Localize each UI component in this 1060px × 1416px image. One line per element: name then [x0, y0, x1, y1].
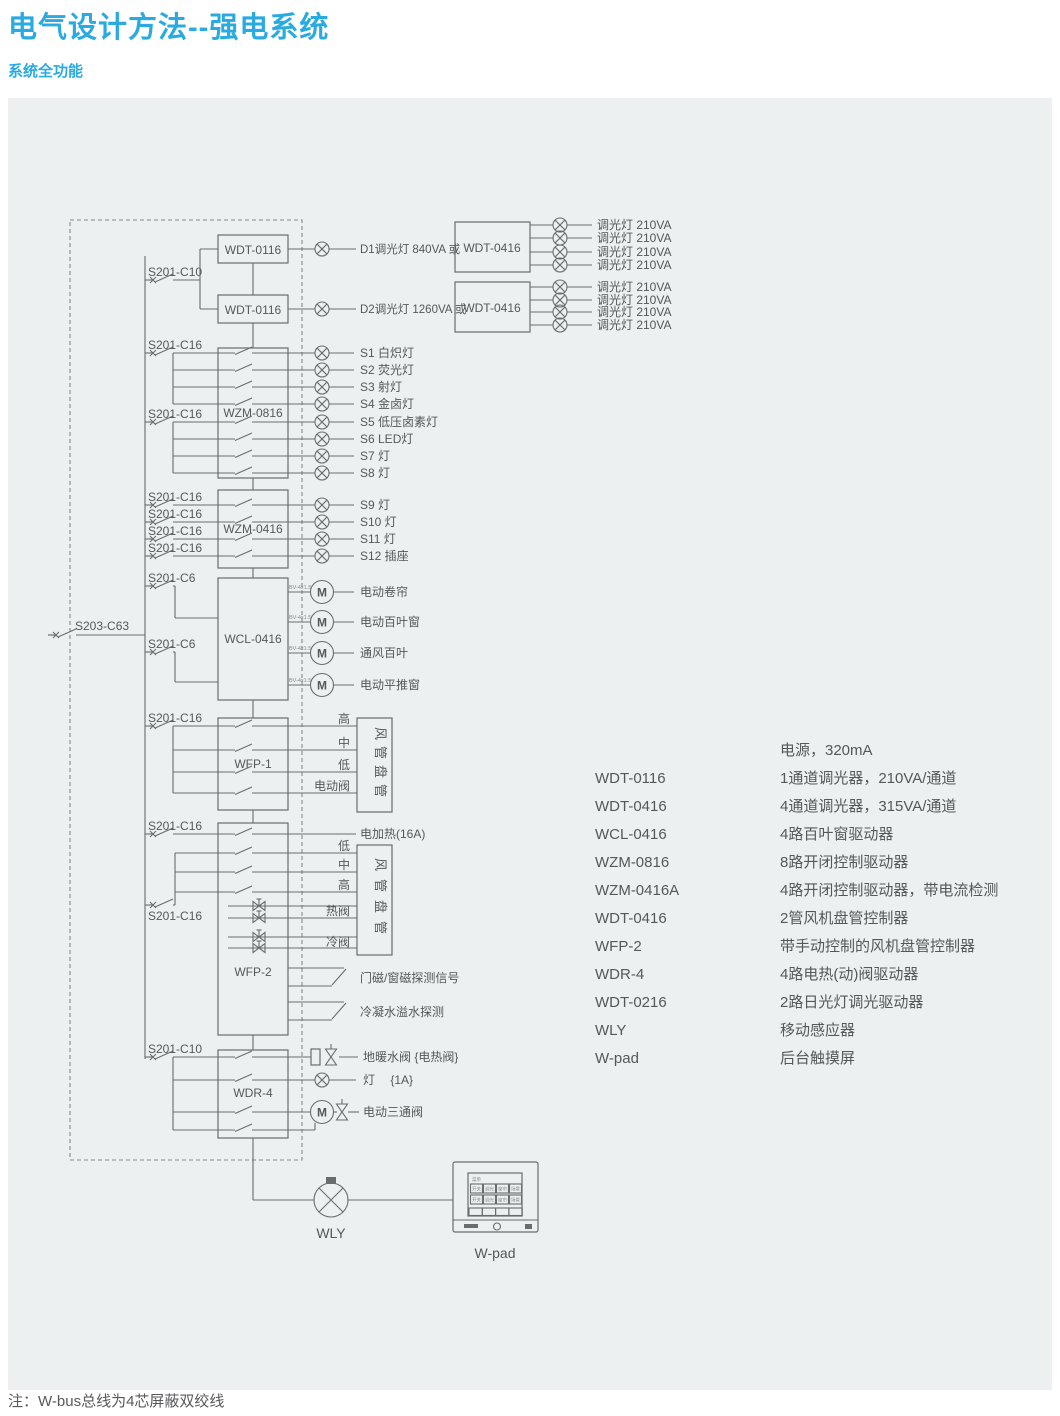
page-subtitle: 系统全功能 [8, 60, 83, 81]
legend: 电源，320mA WDT-01161通道调光器，210VA/通道 WDT-041… [595, 742, 998, 1067]
door-sensor-input: 门磁/窗磁探测信号 [288, 968, 459, 986]
wpad-button: 开关 [472, 1197, 481, 1204]
wire-spec: BV-4x1.5 [289, 585, 311, 591]
legend-desc: 移动感应器 [780, 1021, 855, 1039]
row-label: 电动阀 [314, 779, 350, 793]
output-label: S10 灯 [360, 515, 397, 529]
lighting-section-wzm0416: WZM-0416 S201-C16 S9 灯 S201-C16 S10 灯 S2… [145, 490, 409, 568]
page-title: 电气设计方法--强电系统 [8, 4, 329, 46]
legend-desc: 电源，320mA [780, 742, 873, 759]
breaker-label: S201-C16 [148, 909, 202, 923]
legend-desc: 后台触摸屏 [780, 1050, 855, 1067]
legend-code: WZM-0416A [595, 882, 679, 899]
wpad-mark [525, 1224, 532, 1229]
output-label: 电动平推窗 [360, 678, 420, 692]
module-label: WFP-2 [234, 965, 272, 979]
wpad-buttons-row2: 开关 调光 窗帘 场景 [471, 1195, 522, 1204]
bus-devices: WLY 菜单 开关 调光 窗帘 场景 开关 调光 窗帘 场景 [253, 1162, 538, 1261]
breaker-label: S201-C16 [148, 490, 202, 504]
dimmer-section: S201-C10 WDT-0116 WDT-0116 D1调光灯 840VA 或… [145, 218, 671, 332]
legend-code: WDT-0416 [595, 910, 667, 927]
curtain-section-wcl0416: S201-C6 S201-C6 WCL-0416 BV-4x1.5M电动卷帘 B… [145, 571, 420, 700]
module-box-wfp2 [218, 823, 288, 1035]
channel-label: 调光灯 210VA [597, 305, 671, 319]
legend-desc: 2路日光灯调光驱动器 [780, 994, 923, 1011]
wpad-button: 窗帘 [498, 1197, 507, 1204]
wdt0416-2-outputs: 调光灯 210VA 调光灯 210VA 调光灯 210VA 调光灯 210VA [530, 280, 671, 332]
fan-coil-label: 风管盘管 [373, 727, 388, 803]
wpad-button: 场景 [511, 1197, 520, 1204]
heat-valve-body [311, 1049, 320, 1065]
wly-label: WLY [316, 1225, 346, 1241]
wpad-speaker [464, 1224, 478, 1228]
legend-desc: 1通道调光器，210VA/通道 [780, 770, 956, 787]
wpad-button: 调光 [485, 1186, 494, 1193]
output-label: S8 灯 [360, 466, 390, 480]
wpad-button: 开关 [472, 1186, 481, 1193]
lighting-section-wzm0816: S201-C16 S201-C16 WZM-0816 S1 白炽灯 S2 荧光灯… [145, 338, 438, 480]
legend-code: WDT-0116 [595, 770, 666, 787]
breaker-label: S201-C10 [148, 265, 202, 279]
wpad-home-button [494, 1223, 501, 1230]
module-label: WDT-0416 [463, 241, 521, 255]
legend-desc: 8路开闭控制驱动器 [780, 854, 908, 871]
circuit-diagram: S203-C63 S201-C10 WDT-0116 WDT-0116 D1调光… [8, 98, 1052, 1390]
wpad-button: 场景 [511, 1186, 520, 1193]
output-label-three-way: 电动三通阀 [363, 1105, 423, 1119]
input-label-condensate: 冷凝水溢水探测 [360, 1004, 444, 1019]
row-label: 中 [338, 735, 350, 750]
legend-desc: 带手动控制的风机盘管控制器 [780, 937, 975, 955]
footnote: 注：W-bus总线为4芯屏蔽双绞线 [8, 1390, 224, 1411]
breaker-label: S201-C16 [148, 819, 202, 833]
breaker-label: S201-C16 [148, 524, 202, 538]
channel-label: 调光灯 210VA [597, 245, 671, 259]
wpad-label: W-pad [475, 1245, 516, 1261]
row-label: 高 [338, 711, 350, 726]
motor-icon: M [317, 586, 327, 600]
breaker-label: S201-C16 [148, 507, 202, 521]
breaker-label: S201-C16 [148, 711, 202, 725]
fancoil-section-wfp1: S201-C16 WFP-1 高 中 低 电动阀 风管盘管 [145, 711, 392, 812]
module-label: WDT-0416 [463, 301, 521, 315]
output-label: S5 低压卤素灯 [360, 415, 438, 429]
wire-spec: BV-4x1.5 [289, 678, 311, 684]
module-label: WCL-0416 [224, 632, 282, 646]
motor-icon: M [317, 1106, 327, 1120]
legend-code: WFP-2 [595, 938, 642, 955]
output-label-floor-valve: 地暖水阀 {电热阀} [363, 1050, 458, 1064]
output-label-d2: D2调光灯 1260VA 或 [360, 302, 467, 316]
row-label: 高 [338, 877, 350, 892]
output-label: S9 灯 [360, 498, 390, 512]
main-breaker-label: S203-C63 [75, 619, 129, 633]
row-label-hot-valve: 热阀 [326, 904, 350, 918]
breaker-label: S201-C10 [148, 1042, 202, 1056]
motor-icon: M [317, 647, 327, 661]
module-label: WDT-0116 [225, 303, 282, 317]
power-bus: S203-C63 [48, 256, 145, 1059]
module-label: WZM-0816 [223, 406, 283, 420]
row-label-heater: 电加热(16A) [360, 827, 425, 841]
output-label: S11 灯 [360, 532, 396, 546]
diagram-panel: S203-C63 S201-C10 WDT-0116 WDT-0116 D1调光… [8, 98, 1052, 1390]
legend-desc: 2管风机盘管控制器 [780, 909, 908, 927]
legend-code: WDR-4 [595, 966, 644, 983]
wpad-bottom-cells [469, 1208, 522, 1216]
cabinet-dashed-border [70, 220, 302, 1160]
output-label-lamp: 灯 {1A} [363, 1073, 413, 1087]
legend-desc: 4路电热(动)阀驱动器 [780, 966, 918, 983]
module-label: WDR-4 [233, 1086, 273, 1100]
motor-icon: M [317, 616, 327, 630]
output-label-d1: D1调光灯 840VA 或 [360, 242, 461, 256]
breaker-label: S201-C16 [148, 407, 202, 421]
channel-label: 调光灯 210VA [597, 258, 671, 272]
wire-spec: BV-4x1.5 [289, 646, 311, 652]
motor-icon: M [317, 679, 327, 693]
channel-label: 调光灯 210VA [597, 231, 671, 245]
output-label: S12 插座 [360, 548, 409, 563]
wpad-menu-label: 菜单 [472, 1176, 481, 1183]
channel-label: 调光灯 210VA [597, 280, 671, 294]
output-label: S4 金卤灯 [360, 396, 414, 411]
legend-code: WZM-0816 [595, 854, 669, 871]
output-label: S6 LED灯 [360, 432, 413, 446]
breaker-label: S201-C6 [148, 571, 196, 585]
legend-code: W-pad [595, 1050, 639, 1067]
legend-code: WLY [595, 1022, 626, 1039]
output-label: S7 灯 [360, 449, 390, 463]
breaker-label: S201-C16 [148, 338, 202, 352]
wire-spec: BV-4x1.5 [289, 615, 311, 621]
wdt0416-1-outputs: 调光灯 210VA 调光灯 210VA 调光灯 210VA 调光灯 210VA [530, 218, 671, 272]
light-outputs: S1 白炽灯 S2 荧光灯 S3 射灯 S4 金卤灯 S5 低压卤素灯 S6 L… [173, 345, 438, 480]
wpad-button: 窗帘 [498, 1186, 507, 1193]
legend-desc: 4路百叶窗驱动器 [780, 825, 893, 843]
row-label: 低 [338, 758, 350, 772]
output-label: 通风百叶 [360, 646, 408, 660]
wly-sensor-icon [314, 1177, 348, 1217]
output-label: S3 射灯 [360, 379, 402, 394]
legend-code: WDT-0416 [595, 798, 667, 815]
input-label-door: 门磁/窗磁探测信号 [360, 970, 459, 985]
condensate-sensor-input: 冷凝水溢水探测 [288, 1002, 444, 1020]
wpad-buttons-row1: 开关 调光 窗帘 场景 [471, 1184, 522, 1193]
wpad-button: 调光 [485, 1197, 494, 1204]
legend-code: WCL-0416 [595, 826, 667, 843]
motor-outputs: BV-4x1.5M电动卷帘 BV-4x1.5M电动百叶窗 BV-4x1.5M通风… [288, 581, 420, 697]
channel-label: 调光灯 210VA [597, 318, 671, 332]
page: { "colors": {"accent": "#29abe2", "panel… [0, 0, 1060, 1416]
breaker-label: S201-C16 [148, 541, 202, 555]
module-label: WZM-0416 [223, 522, 283, 536]
wdr4-rows: 地暖水阀 {电热阀} 灯 {1A} M 电动三通阀 [173, 1044, 458, 1132]
output-label: S1 白炽灯 [360, 345, 414, 360]
wpad-device: 菜单 开关 调光 窗帘 场景 开关 调光 窗帘 场景 [453, 1162, 538, 1232]
output-label: 电动百叶窗 [360, 615, 420, 629]
output-label: S2 荧光灯 [360, 363, 414, 377]
legend-code: WDT-0216 [595, 994, 667, 1011]
output-label: 电动卷帘 [360, 584, 408, 599]
module-label: WDT-0116 [225, 243, 282, 257]
row-label-cold-valve: 冷阀 [326, 935, 350, 949]
channel-label: 调光灯 210VA [597, 218, 671, 232]
row-label: 中 [338, 857, 350, 872]
row-label: 低 [338, 839, 350, 853]
module-label: WFP-1 [234, 757, 272, 771]
fan-coil-label: 风管盘管 [373, 858, 388, 942]
legend-desc: 4路开闭控制驱动器，带电流检测 [780, 882, 998, 899]
legend-desc: 4通道调光器，315VA/通道 [780, 798, 956, 815]
breaker-label: S201-C6 [148, 637, 196, 651]
